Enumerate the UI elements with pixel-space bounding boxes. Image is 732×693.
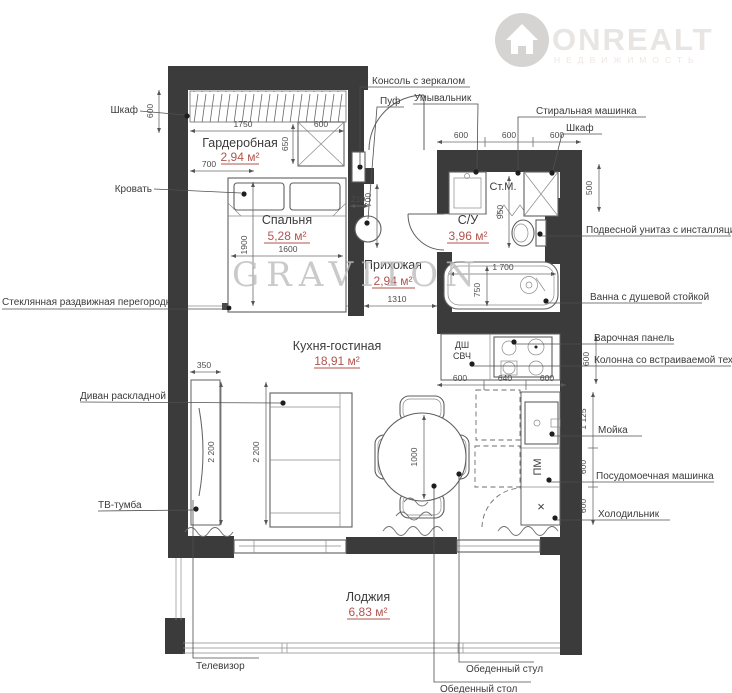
logo-text: ONREALT [552,22,714,57]
room-area-loggia: 6,83 м² [349,605,388,619]
oven-mark: ДШ [455,340,469,350]
leader-dot [537,231,542,236]
pillow [290,183,340,210]
dim-hall-width: 1310 [388,294,407,304]
dim-bed-offset: 700 [202,159,216,169]
dim-fridge-zone: 600 [578,499,588,513]
leader-dot [184,113,189,118]
callout-washing-machine: Стиральная машинка [536,106,637,117]
logo-subtext: НЕДВИЖИМОСТЬ [554,55,700,65]
room-area-bathroom: 3,96 м² [449,229,488,243]
house-icon-door [518,46,526,54]
leader-dot [546,477,551,482]
dim-wc-zone: 950 [495,205,505,219]
leader-dot [552,515,557,520]
wardrobe-hanger-rail [190,91,346,122]
microwave-mark: СВЧ [453,351,471,361]
leader [80,402,281,403]
leader-dot [431,483,436,488]
wall-bottom-b [346,537,457,554]
leader-dot [456,471,461,476]
leader-dot [473,169,478,174]
callout-glass-partition: Стеклянная раздвижная перегородка [2,297,176,308]
callout-tv: Телевизор [196,661,245,672]
kitchen-sink-shape [525,402,558,444]
watermark-text: GRAVITON [232,255,482,295]
fridge-door-swing-dashed [482,488,521,527]
leader-dot [241,191,246,196]
room-area-kitchen-living: 18,91 м² [314,354,360,368]
fridge-mark: × [537,499,545,514]
curtain-wave [185,528,233,537]
washing-machine-mark: Ст.М. [489,181,516,193]
dim-counter-2: 640 [498,373,512,383]
dim-shaft-height: 500 [584,181,594,195]
wall-loggia-left-block [165,618,185,654]
callout-hob: Варочная панель [594,333,674,344]
dim-bed-width: 1600 [279,244,298,254]
wall-kitchen-divider [437,312,560,334]
dining-table-shape [378,413,466,501]
callout-bathtub: Ванна с душевой стойкой [590,292,709,303]
callout-pouf: Пуф [380,95,400,107]
wall-right [560,150,582,655]
room-name-bathroom: С/У [458,213,479,227]
callout-dishwasher: Посудомоечная машинка [596,471,714,482]
loggia-window [183,643,560,653]
leader-dot [364,220,369,225]
burner-dot [535,346,538,349]
loggia: Лоджия 6,83 м² [346,590,390,619]
dim-counter-1: 600 [453,373,467,383]
leader-dot [227,306,232,311]
bathroom-door-swing [408,214,444,250]
leader-dot [469,361,474,366]
leader [193,500,259,658]
callout-column-appliances: Колонна со встраиваемой техникой [594,355,732,366]
room-name-kitchen-living: Кухня-гостиная [293,339,381,353]
wall-bottom-a [168,536,234,558]
pillow [234,183,284,210]
loggia-left-wall-lines [176,558,181,620]
leader-dot [549,170,554,175]
dim-wardrobe-cab-depth: 650 [280,137,290,151]
dim-san-top-2: 600 [502,130,516,140]
dim-san-top-1: 600 [454,130,468,140]
dim-table-diameter: 1000 [409,447,419,466]
room-area-bedroom: 5,28 м² [268,229,307,243]
dim-wardrobe-cab-width: 600 [314,119,328,129]
callout-closet-left: Шкаф [110,104,138,116]
dim-sink-zone: 1 125 [578,408,588,430]
wall-top [168,66,368,90]
room-name-wardrobe: Гардеробная [202,136,278,150]
floor-plan-drawing: Гардеробная 2,94 м² Спальня 5,28 м² Прих… [0,0,732,693]
dim-wardrobe-width: 1750 [234,119,253,129]
leader-dot [193,506,198,511]
dim-pouf-zone: 700 [363,193,373,207]
callout-closet-right: Шкаф [566,122,594,134]
room-area-wardrobe: 2,94 м² [221,150,260,164]
curtain-wave [498,527,558,536]
floor-plan: Гардеробная 2,94 м² Спальня 5,28 м² Прих… [0,0,732,693]
wall-left [168,66,188,558]
dim-counter-depth: 600 [581,352,591,366]
dim-bed-length: 1900 [239,235,249,254]
leader-dot [549,431,554,436]
leader-dot [515,170,520,175]
callout-sofa: Диван раскладной [80,391,166,402]
callout-washbasin: Умывальник [414,93,472,104]
dim-san-top-3: 600 [550,130,564,140]
leader-dot [511,339,516,344]
dim-living-2: 2 200 [251,441,261,463]
dim-wardrobe-side: 600 [145,104,155,118]
callout-console: Консоль с зеркалом [372,76,465,87]
wall-bottom-c [540,537,562,555]
toilet-bowl [512,220,534,246]
callout-tv-stand: ТВ-тумба [98,499,142,511]
leader [459,476,534,662]
callout-wall-hung-toilet: Подвесной унитаз с инсталляцией [586,225,732,236]
tv-shape [199,408,203,496]
room-name-loggia: Лоджия [346,590,390,604]
callout-bed: Кровать [115,184,152,195]
balcony-door [234,540,346,553]
dim-counter-3: 600 [540,373,554,383]
leader-dot [280,400,285,405]
callout-sink: Мойка [598,425,628,436]
callout-fridge: Холодильник [598,509,660,520]
dim-tv-depth: 350 [197,360,211,370]
callout-dining-table: Обеденный стол [440,683,518,693]
callout-dining-chair: Обеденный стул [466,663,543,675]
dim-living-1: 2 200 [206,441,216,463]
leader-dot [543,298,548,303]
dishwasher-mark: ПМ [532,458,544,475]
dim-bath-length: 1 700 [492,262,514,272]
room-name-bedroom: Спальня [262,213,312,227]
dashed-zone [475,446,520,487]
leader [368,107,404,219]
dashed-zone [476,390,520,440]
dim-dw-zone: 600 [578,460,588,474]
leader-dot [357,164,362,169]
